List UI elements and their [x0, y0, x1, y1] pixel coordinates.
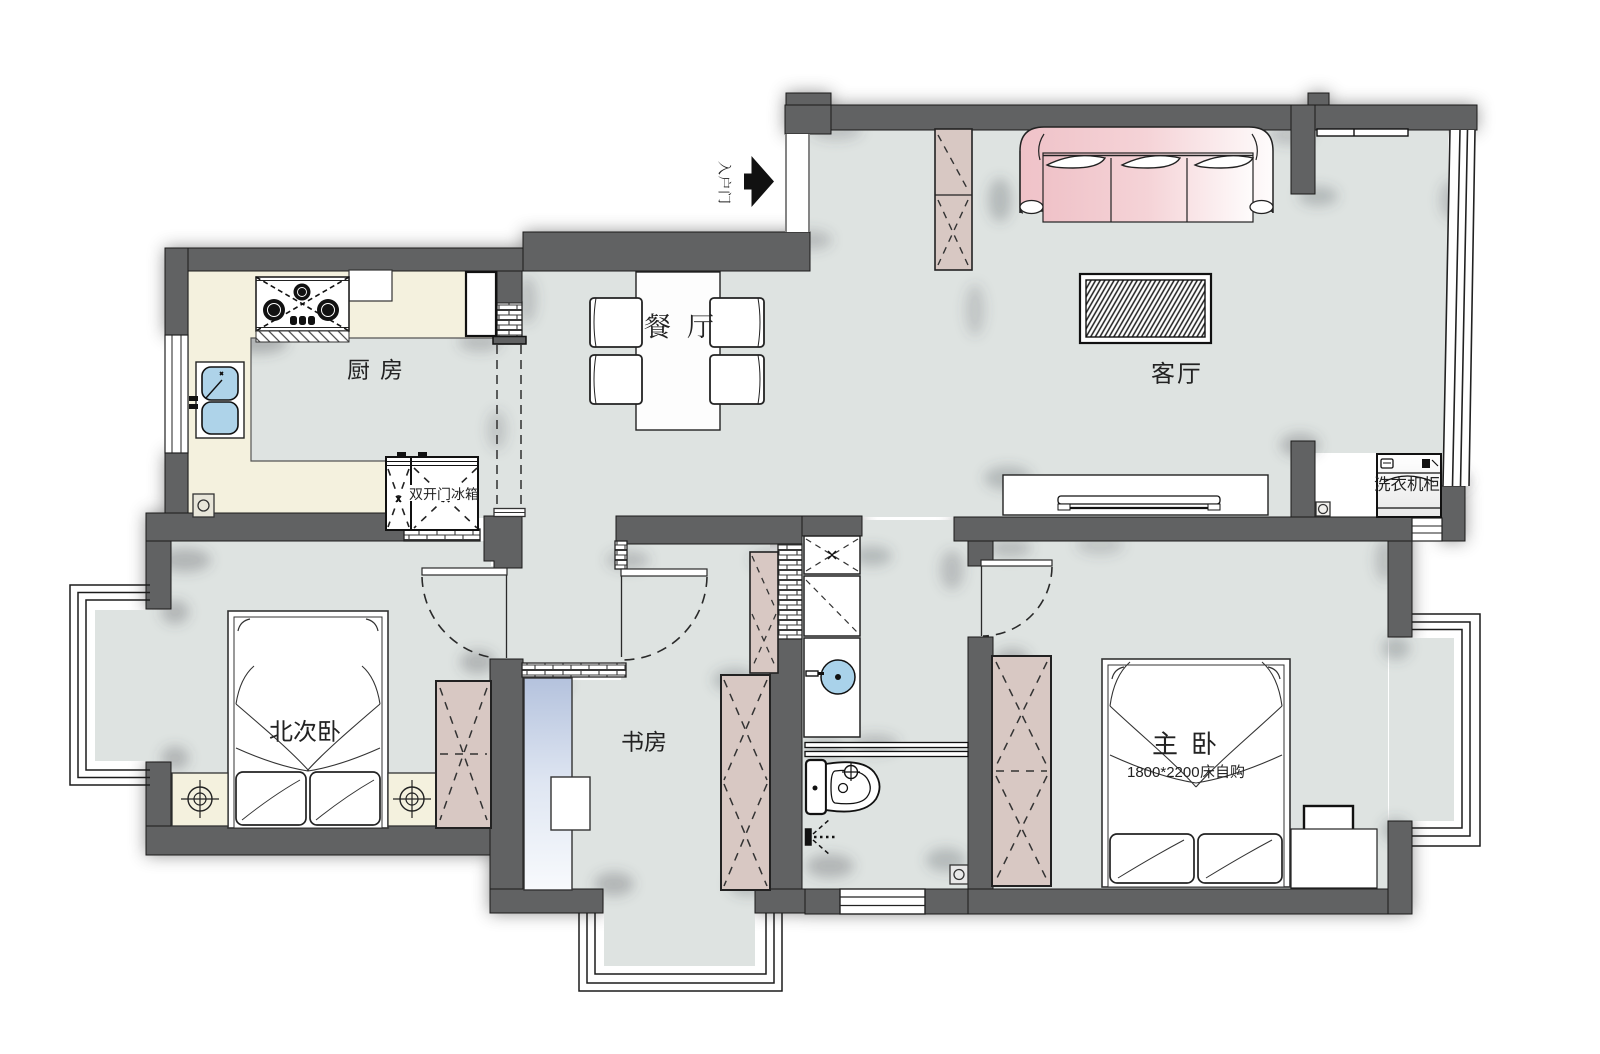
- svg-text:1800*2200: 1800*2200: [1127, 764, 1200, 781]
